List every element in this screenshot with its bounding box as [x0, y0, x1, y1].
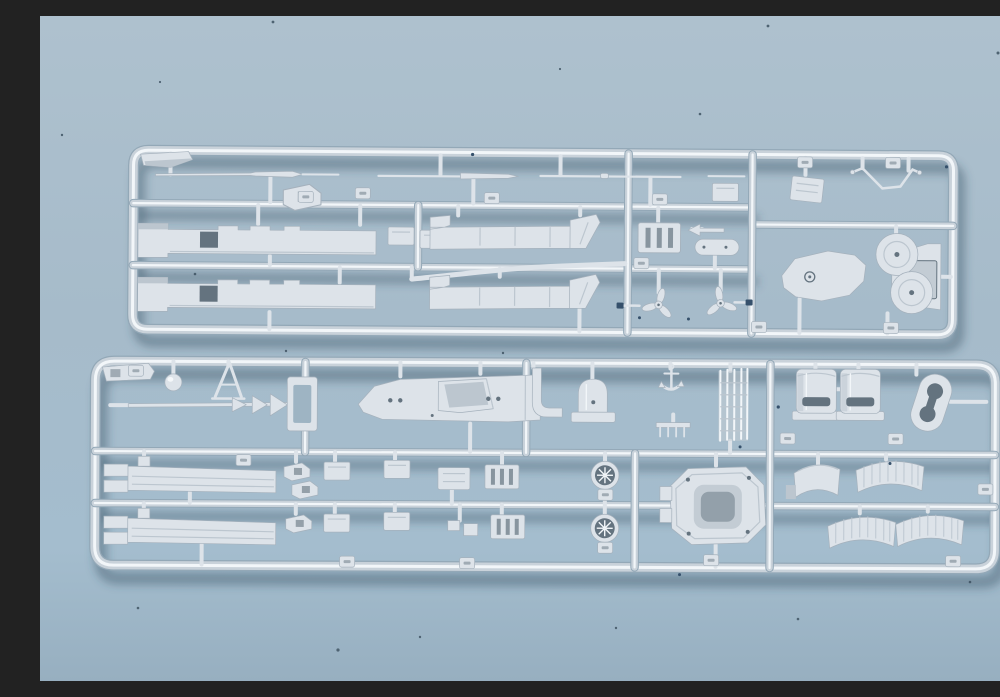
photo — [40, 16, 1000, 681]
pill-fitting-part — [695, 239, 739, 255]
davit-wire-end — [917, 170, 921, 174]
part-number-tab — [236, 455, 251, 466]
deck-hole — [486, 397, 490, 401]
deck-hole — [398, 398, 402, 402]
funnel-grate-wrap — [591, 461, 619, 489]
barbette-bolt — [747, 476, 751, 480]
dust-speck — [137, 607, 140, 610]
dust-speck — [272, 21, 275, 24]
small-plate-part — [324, 462, 350, 480]
gate-mark — [945, 165, 948, 168]
dust-speck — [159, 81, 161, 83]
funnel-wrap — [836, 369, 884, 420]
shaft-dark-tip — [617, 303, 624, 309]
barbette-tab — [660, 509, 672, 523]
comb-bar — [656, 422, 690, 427]
barbette-recess-inner — [701, 492, 735, 522]
part-number-tab — [598, 542, 613, 553]
dust-speck — [559, 68, 561, 70]
small-fitting-part — [448, 521, 460, 531]
part-number-tab — [704, 555, 719, 566]
dust-speck — [502, 352, 504, 354]
mounting-plate-part — [790, 176, 824, 203]
vent-box-wrap — [638, 223, 681, 253]
rangefinder-ball-part — [165, 374, 182, 391]
gate-mark — [471, 153, 474, 156]
barrel-rod-part — [378, 176, 460, 177]
dome-hole — [591, 400, 595, 404]
part-number-tab — [978, 484, 993, 495]
part-number-tab — [886, 157, 901, 168]
gate-mark — [678, 573, 681, 576]
angle-bracket-notch — [110, 369, 120, 377]
dust-speck — [797, 618, 800, 621]
shield-foot — [786, 485, 796, 499]
funnel-grate-part — [591, 514, 619, 542]
part-number-tab — [634, 258, 649, 269]
shaft-dark-tip — [746, 299, 753, 305]
mounting-plate-wrap — [790, 176, 824, 203]
funnel-part — [792, 369, 840, 420]
dust-speck — [419, 636, 421, 638]
turntable-lower-hole — [909, 290, 914, 295]
gate-mark — [889, 462, 892, 465]
small-plate-part — [384, 512, 410, 530]
barbette-bolt — [746, 530, 750, 534]
ladder-rails-part — [718, 369, 748, 441]
part-number-tab — [883, 322, 898, 333]
funnel-grate-part — [591, 461, 619, 489]
dome-flange — [571, 412, 615, 422]
davit-wire-end — [850, 170, 854, 174]
dust-speck — [997, 52, 1000, 55]
funnel-grate-wrap — [591, 514, 619, 542]
casemate-slope — [444, 382, 488, 408]
gate-mark — [777, 405, 780, 408]
part-number-tab — [340, 556, 355, 567]
part-number-tab — [355, 188, 370, 199]
part-number-tab — [484, 193, 499, 204]
pill-dot — [702, 246, 705, 249]
small-plate-part — [384, 460, 410, 478]
runner-highlight — [751, 154, 752, 333]
part-number-tab — [652, 194, 667, 205]
part-number-tab — [298, 191, 313, 202]
deck-dot — [431, 414, 434, 417]
rod-collar — [600, 173, 608, 178]
fitting-plate-part — [388, 227, 414, 245]
ball-highlight — [167, 377, 173, 382]
part-number-tab — [598, 489, 613, 500]
barbette-bolt — [687, 532, 691, 536]
small-fitting-part — [464, 524, 478, 536]
dust-speck — [615, 627, 617, 629]
part-number-tab — [798, 157, 813, 168]
funnel-wrap — [792, 369, 840, 420]
gate-mark — [687, 318, 690, 321]
deck-hole — [496, 397, 500, 401]
barbette-tab — [660, 487, 672, 501]
small-plate-part — [712, 183, 738, 201]
part-number-tab — [128, 365, 143, 376]
frame-part-opening — [293, 385, 311, 423]
dust-speck — [699, 113, 702, 116]
turntable-upper-hole — [894, 252, 899, 257]
gate-mark — [739, 445, 742, 448]
dust-speck — [61, 134, 63, 136]
dome-body — [578, 379, 607, 412]
pill-dot — [724, 246, 727, 249]
equipment-box-part — [438, 468, 470, 490]
vent-grille-part — [491, 515, 525, 539]
deck-hole — [388, 398, 392, 402]
gate-mark — [638, 316, 641, 319]
sprue-photo-canvas — [40, 16, 1000, 681]
dust-speck — [336, 648, 339, 651]
runner-highlight — [752, 224, 953, 225]
base-plate-hole — [808, 275, 811, 278]
part-number-tab — [888, 433, 903, 444]
dust-speck — [767, 25, 770, 28]
part-number-tab — [946, 556, 961, 567]
dust-speck — [285, 350, 287, 352]
barbette-bolt — [686, 478, 690, 482]
part-number-tab — [460, 558, 475, 569]
part-number-tab — [780, 433, 795, 444]
antenna-rod-part — [540, 176, 680, 177]
part-number-tab — [751, 321, 766, 332]
vent-grille-part — [485, 465, 519, 489]
funnel-part — [836, 369, 884, 420]
vent-box-part — [638, 223, 681, 253]
small-plate-part — [324, 514, 350, 532]
runner-highlight — [770, 364, 771, 568]
